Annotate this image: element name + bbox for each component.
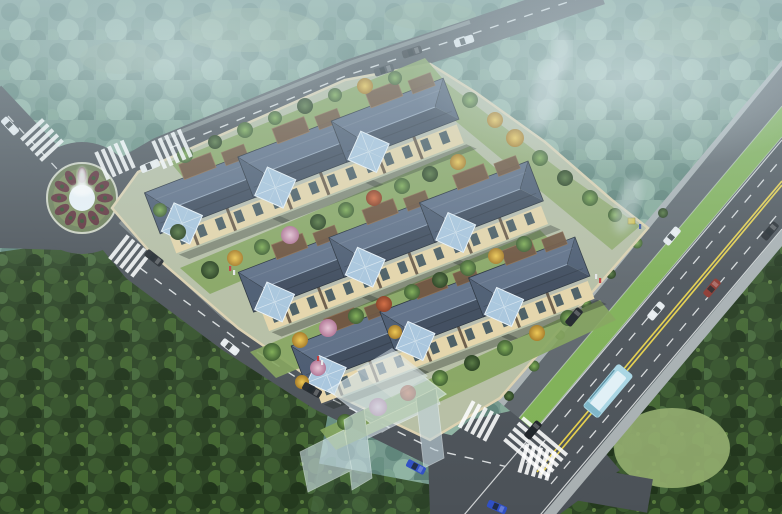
rendering-canvas [0,0,782,514]
aerial-rendering [0,0,782,514]
